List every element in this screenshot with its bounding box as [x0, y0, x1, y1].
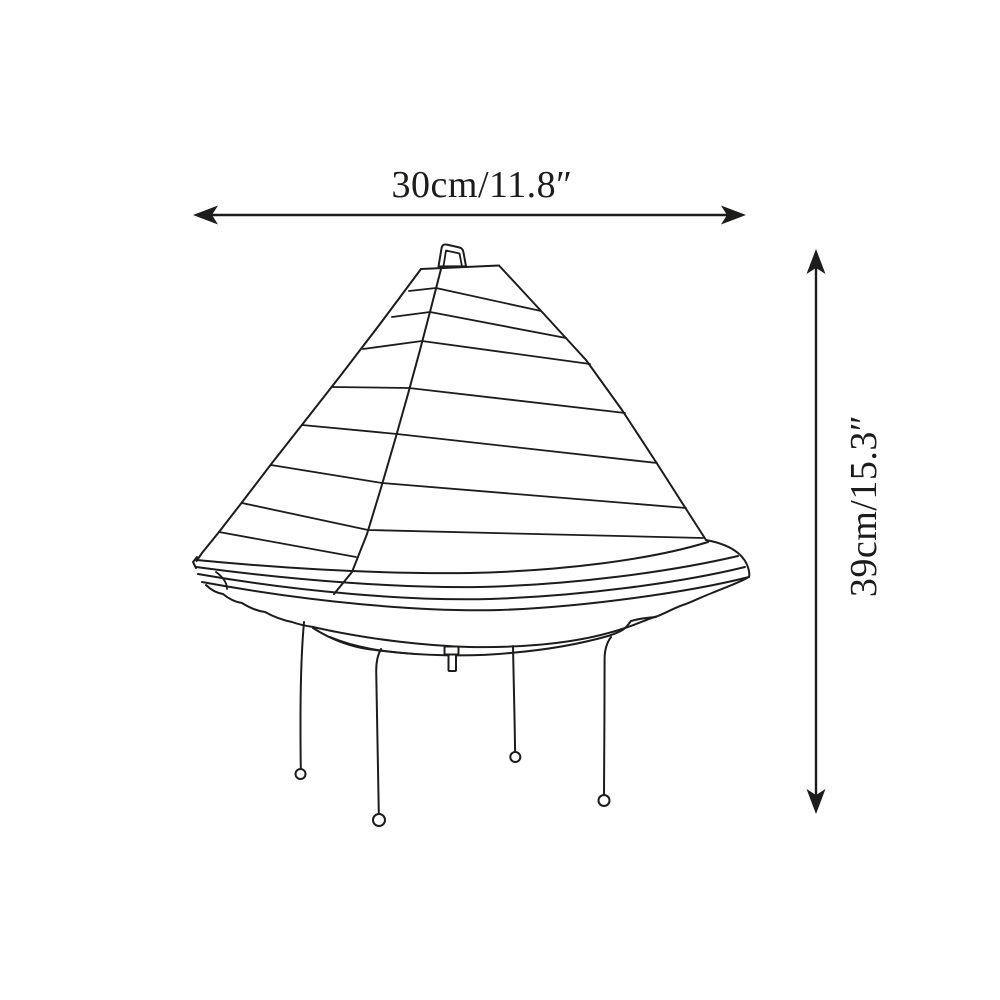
- pull-switch: [445, 647, 459, 672]
- ball-foot: [373, 814, 385, 826]
- base-underside: [206, 578, 747, 647]
- width-dimension-line: [193, 206, 746, 225]
- switch-cap: [445, 647, 459, 655]
- ball-foot: [510, 752, 520, 762]
- lamp-shade: [197, 244, 707, 594]
- ball-foot: [296, 769, 306, 779]
- leg-front-right: [599, 637, 612, 806]
- lamp-line-drawing: [0, 0, 1000, 1000]
- leg-back-right: [510, 646, 520, 762]
- shade-front-edge: [334, 269, 441, 594]
- shade-top-tab: [439, 244, 467, 266]
- diagram-canvas: 30cm/11.8″ 39cm/15.3″: [0, 0, 1000, 1000]
- leg-back-left: [296, 622, 306, 779]
- height-dimension-line: [807, 249, 826, 814]
- lamp-base: [193, 540, 749, 655]
- switch-stem: [449, 655, 457, 672]
- leg-front-left: [373, 649, 385, 826]
- ball-foot: [599, 795, 610, 806]
